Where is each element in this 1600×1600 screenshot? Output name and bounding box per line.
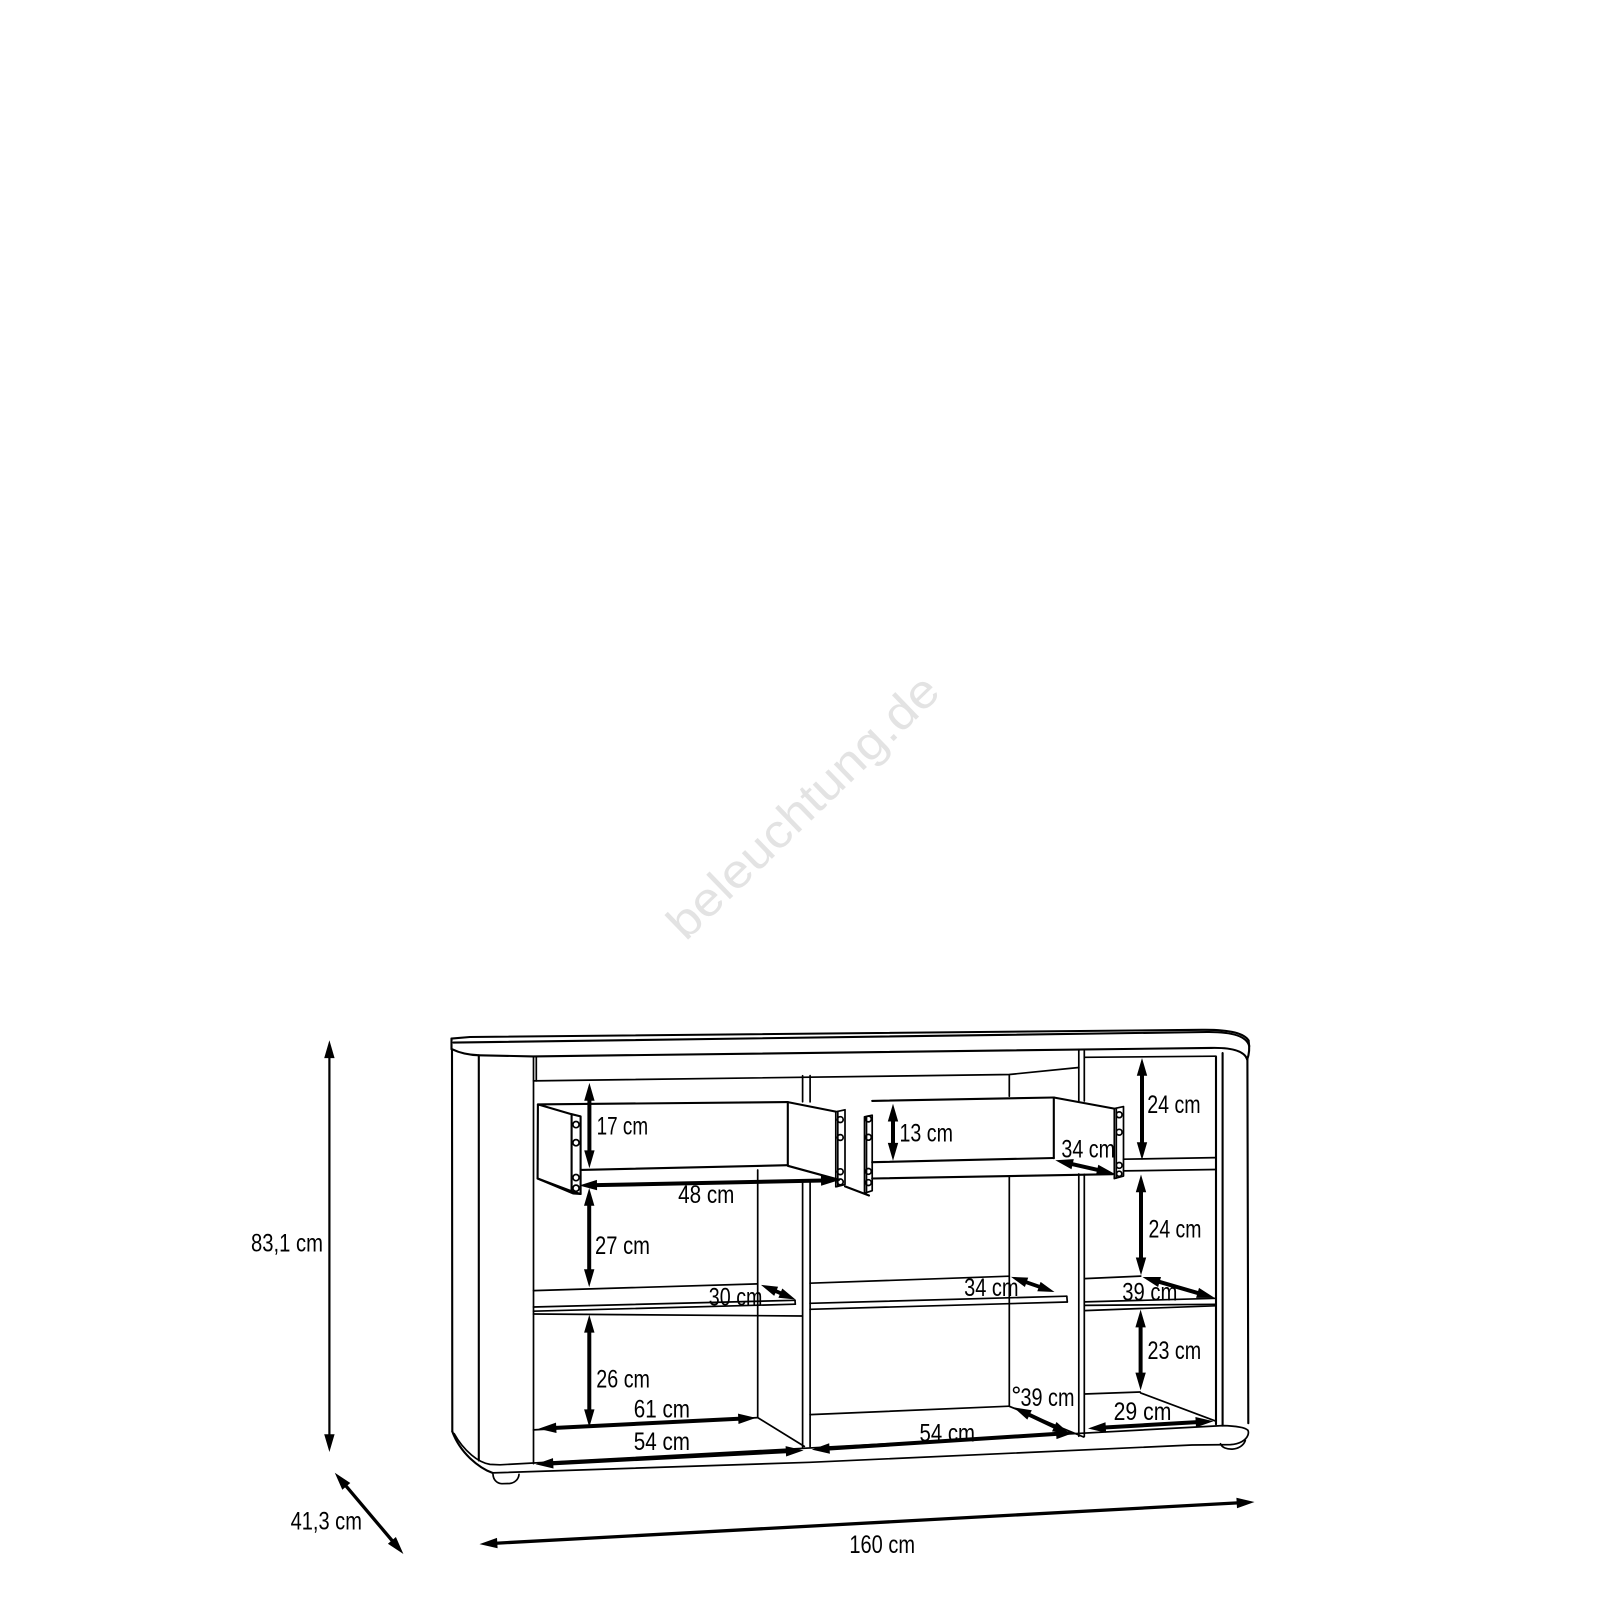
svg-text:30 cm: 30 cm: [709, 1284, 763, 1312]
svg-text:54 cm: 54 cm: [634, 1428, 690, 1456]
svg-text:24 cm: 24 cm: [1149, 1216, 1202, 1244]
svg-text:54 cm: 54 cm: [920, 1420, 976, 1448]
svg-text:160 cm: 160 cm: [849, 1531, 915, 1559]
svg-text:61 cm: 61 cm: [634, 1396, 690, 1424]
svg-text:39 cm: 39 cm: [1021, 1384, 1075, 1412]
svg-text:13 cm: 13 cm: [900, 1119, 954, 1147]
svg-text:34 cm: 34 cm: [964, 1274, 1019, 1302]
svg-text:23 cm: 23 cm: [1148, 1337, 1202, 1365]
svg-text:48 cm: 48 cm: [678, 1181, 734, 1209]
svg-text:41,3 cm: 41,3 cm: [291, 1508, 362, 1536]
svg-text:27 cm: 27 cm: [595, 1232, 650, 1260]
svg-text:26 cm: 26 cm: [596, 1366, 650, 1394]
svg-text:24 cm: 24 cm: [1147, 1091, 1200, 1119]
svg-text:34 cm: 34 cm: [1061, 1136, 1115, 1164]
svg-text:39 cm: 39 cm: [1122, 1279, 1177, 1307]
svg-text:17 cm: 17 cm: [597, 1112, 649, 1140]
svg-text:83,1 cm: 83,1 cm: [251, 1230, 323, 1258]
svg-text:29 cm: 29 cm: [1114, 1398, 1172, 1426]
